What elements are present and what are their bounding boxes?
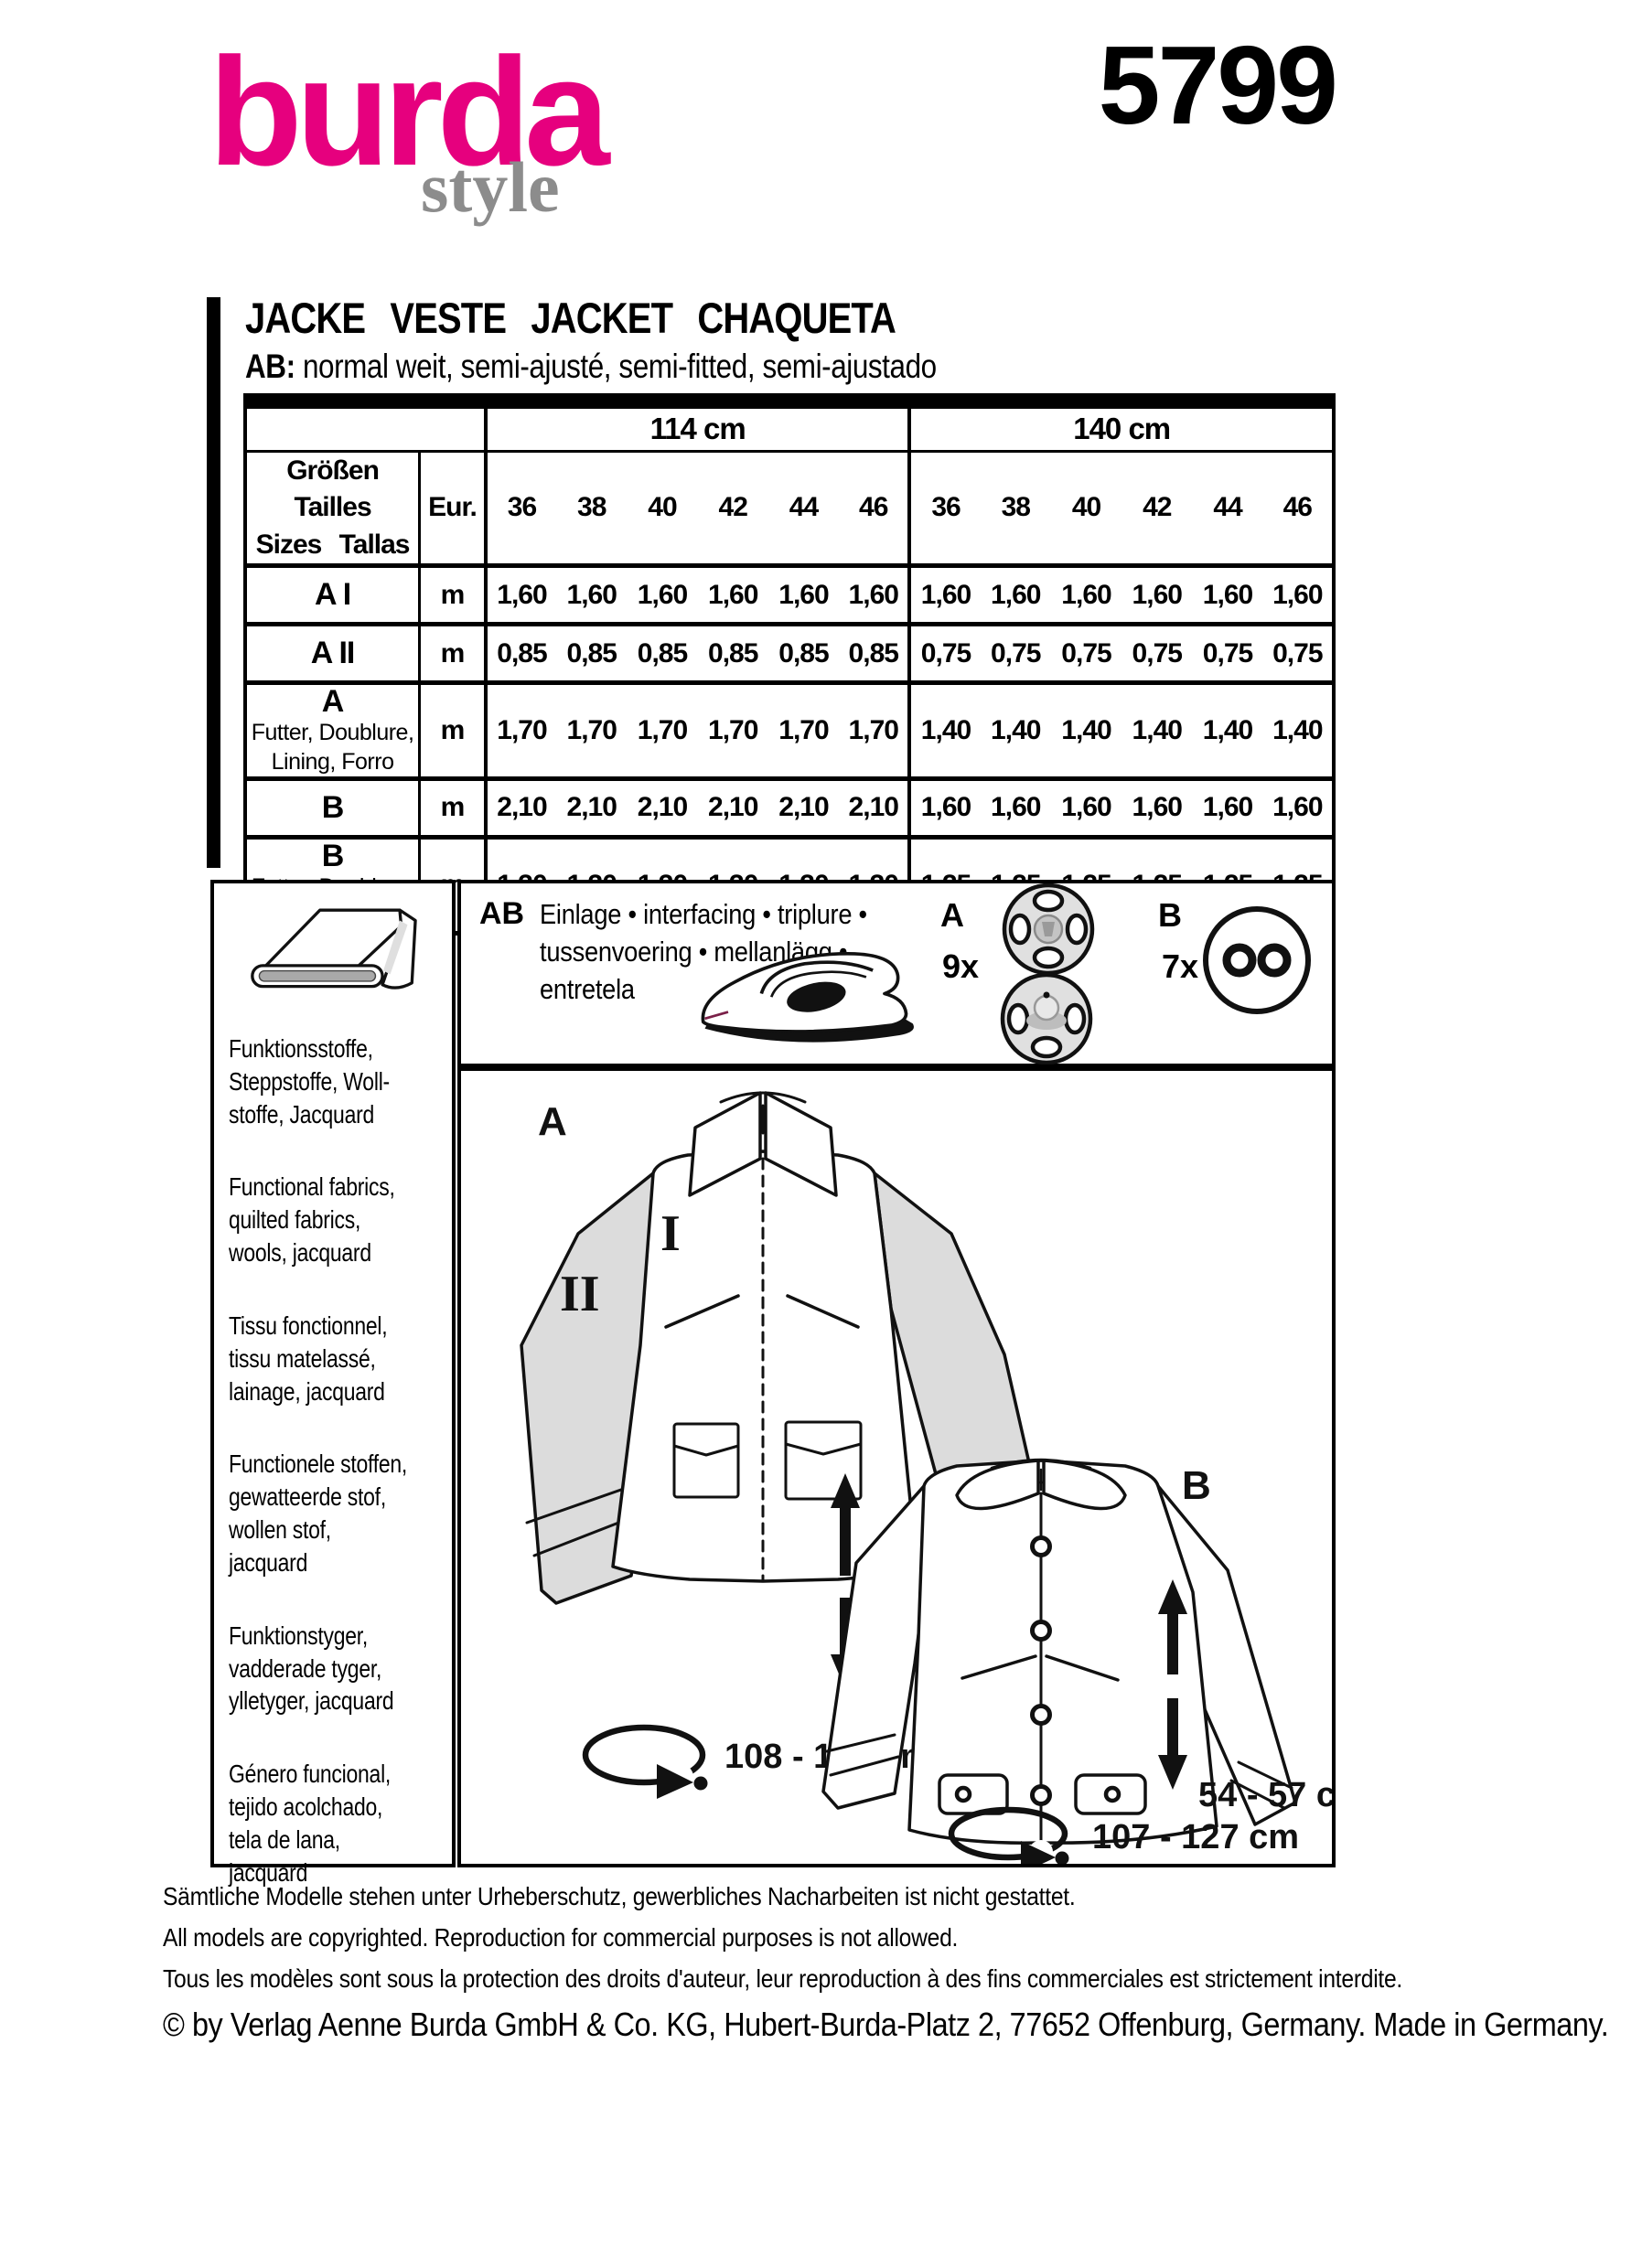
view-a-label: A	[538, 1099, 567, 1144]
iron-icon	[692, 940, 966, 1062]
size-col: 36	[486, 451, 556, 566]
snap-fastener-icon	[990, 883, 1109, 1069]
notions-box: AB Einlage • interfacing • triplure • tu…	[457, 880, 1336, 1067]
size-col: 44	[768, 451, 839, 566]
row-sublabel: Futter, Doublure, Lining, Forro	[247, 719, 418, 776]
table-row: B m 2,102,102,102,102,102,10 1,601,601,6…	[245, 778, 1334, 837]
value-cell: 0,75	[909, 625, 980, 683]
value-cell: 1,70	[698, 683, 768, 779]
row-label: A II	[247, 637, 418, 670]
value-cell: 0,85	[627, 625, 697, 683]
sizes-label: Größen Tailles Sizes Tallas	[245, 451, 420, 566]
value-cell: 2,10	[556, 778, 627, 837]
value-cell: 1,60	[556, 566, 627, 625]
view-b-length: 54 - 57 cm	[1198, 1776, 1332, 1814]
value-cell: 1,60	[981, 566, 1051, 625]
fabric-text-fr: Tissu fonctionnel, tissu matelassé, lain…	[229, 1310, 412, 1407]
size-col: 42	[1121, 451, 1192, 566]
copyright-line-en: All models are copyrighted. Reproduction…	[163, 1923, 1576, 1952]
width-group-row: 114 cm 140 cm	[245, 407, 1334, 451]
value-cell: 1,40	[1263, 683, 1334, 779]
fabric-requirements: 114 cm 140 cm Größen Tailles Sizes Talla…	[243, 393, 1336, 936]
row-label: A	[247, 685, 418, 719]
button-count: 7x	[1162, 947, 1198, 986]
snap-view-label: A	[940, 896, 964, 935]
value-cell: 1,60	[839, 566, 909, 625]
value-cell: 2,10	[768, 778, 839, 837]
row-label: B	[247, 791, 418, 825]
size-col: 40	[1051, 451, 1121, 566]
title-accent-bar	[207, 297, 220, 868]
value-cell: 0,75	[1192, 625, 1262, 683]
value-cell: 1,70	[839, 683, 909, 779]
brand-style-text: style	[421, 152, 560, 223]
size-col: 46	[1263, 451, 1334, 566]
value-cell: 1,70	[627, 683, 697, 779]
fabric-text-en: Functional fabrics, quilted fabrics, woo…	[229, 1171, 412, 1268]
value-cell: 1,60	[909, 566, 980, 625]
value-cell: 1,60	[981, 778, 1051, 837]
value-cell: 2,10	[486, 778, 556, 837]
unit-cell: m	[420, 566, 486, 625]
value-cell: 2,10	[698, 778, 768, 837]
fit-subtitle: AB: normal weit, semi-ajusté, semi-fitte…	[245, 348, 937, 386]
jacket-line-drawings: A I II	[461, 1071, 1332, 1864]
value-cell: 1,60	[486, 566, 556, 625]
fabric-text-es: Género funcional, tejido acolchado, tela…	[229, 1758, 412, 1888]
copyright-line-fr: Tous les modèles sont sous la protection…	[163, 1964, 1576, 1994]
legal-footer: Sämtliche Modelle stehen unter Urhebersc…	[163, 1882, 1642, 2044]
value-cell: 0,85	[556, 625, 627, 683]
value-cell: 1,70	[556, 683, 627, 779]
value-cell: 1,60	[1121, 778, 1192, 837]
unit-cell: m	[420, 625, 486, 683]
value-cell: 1,60	[1192, 778, 1262, 837]
view-b-circumference: 107 - 127 cm	[1092, 1818, 1299, 1856]
fabric-text-nl: Functionele stoffen, gewatteerde stof, w…	[229, 1448, 412, 1578]
table-row: AFutter, Doublure, Lining, Forro m 1,701…	[245, 683, 1334, 779]
pattern-number: 5799	[1099, 29, 1336, 141]
value-cell: 2,10	[839, 778, 909, 837]
size-col: 44	[1192, 451, 1262, 566]
value-cell: 1,40	[981, 683, 1051, 779]
width-group-140: 140 cm	[909, 407, 1334, 451]
row-label: A I	[247, 578, 418, 612]
size-col: 36	[909, 451, 980, 566]
fabric-text-de: Funktionsstoffe, Steppstoffe, Woll- stof…	[229, 1032, 412, 1130]
row-label: B	[247, 840, 418, 873]
size-col: 42	[698, 451, 768, 566]
publisher-copyright: © by Verlag Aenne Burda GmbH & Co. KG, H…	[163, 2006, 1608, 2044]
value-cell: 0,85	[768, 625, 839, 683]
blank-cell	[245, 407, 486, 451]
value-cell: 1,70	[768, 683, 839, 779]
technical-drawings-box: A I II	[457, 1067, 1336, 1867]
value-cell: 1,60	[1051, 566, 1121, 625]
size-col: 38	[981, 451, 1051, 566]
value-cell: 0,75	[1263, 625, 1334, 683]
size-col: 46	[839, 451, 909, 566]
fabric-bolt-icon	[214, 883, 452, 1018]
eur-label: Eur.	[420, 451, 486, 566]
button-view-label: B	[1158, 896, 1182, 935]
value-cell: 1,40	[909, 683, 980, 779]
value-cell: 1,70	[486, 683, 556, 779]
page-title: JACKE VESTE JACKET CHAQUETA	[245, 293, 896, 343]
snap-count: 9x	[942, 947, 979, 986]
value-cell: 1,40	[1192, 683, 1262, 779]
pattern-envelope-back: { "brand": {"name": "burda", "sub": "sty…	[0, 0, 1642, 2268]
brand-logo: burda style	[209, 35, 604, 188]
value-cell: 0,75	[981, 625, 1051, 683]
fit-subtitle-text: normal weit, semi-ajusté, semi-fitted, s…	[295, 348, 937, 385]
value-cell: 1,60	[627, 566, 697, 625]
value-cell: 0,75	[1051, 625, 1121, 683]
value-cell: 0,85	[839, 625, 909, 683]
value-cell: 0,85	[486, 625, 556, 683]
value-cell: 1,60	[1192, 566, 1262, 625]
unit-cell: m	[420, 778, 486, 837]
size-col: 40	[627, 451, 697, 566]
piece-i-label: I	[660, 1205, 681, 1262]
fabric-requirements-table: 114 cm 140 cm Größen Tailles Sizes Talla…	[243, 405, 1336, 936]
value-cell: 0,75	[1121, 625, 1192, 683]
fabric-text-sv: Funktionstyger, vadderade tyger, ylletyg…	[229, 1620, 412, 1717]
value-cell: 1,60	[698, 566, 768, 625]
value-cell: 1,60	[1121, 566, 1192, 625]
value-cell: 1,60	[1263, 566, 1334, 625]
copyright-line-de: Sämtliche Modelle stehen unter Urhebersc…	[163, 1882, 1576, 1911]
piece-ii-label: II	[560, 1266, 600, 1322]
value-cell: 1,60	[768, 566, 839, 625]
fit-subtitle-ab: AB:	[245, 348, 295, 385]
value-cell: 1,40	[1121, 683, 1192, 779]
fabric-types-box: Funktionsstoffe, Steppstoffe, Woll- stof…	[210, 880, 456, 1867]
table-row: A I m 1,601,601,601,601,601,60 1,601,601…	[245, 566, 1334, 625]
value-cell: 1,60	[909, 778, 980, 837]
value-cell: 1,40	[1051, 683, 1121, 779]
value-cell: 2,10	[627, 778, 697, 837]
value-cell: 0,85	[698, 625, 768, 683]
button-icon	[1198, 902, 1317, 1025]
view-a-girth-symbol	[585, 1728, 708, 1799]
width-group-114: 114 cm	[486, 407, 910, 451]
unit-cell: m	[420, 683, 486, 779]
table-row: A II m 0,850,850,850,850,850,85 0,750,75…	[245, 625, 1334, 683]
notions-group-label: AB	[479, 896, 524, 932]
sizes-header-row: Größen Tailles Sizes Tallas Eur. 3638404…	[245, 451, 1334, 566]
size-col: 38	[556, 451, 627, 566]
view-b-label: B	[1182, 1463, 1211, 1508]
value-cell: 1,60	[1051, 778, 1121, 837]
value-cell: 1,60	[1263, 778, 1334, 837]
table-top-rule	[243, 393, 1336, 405]
